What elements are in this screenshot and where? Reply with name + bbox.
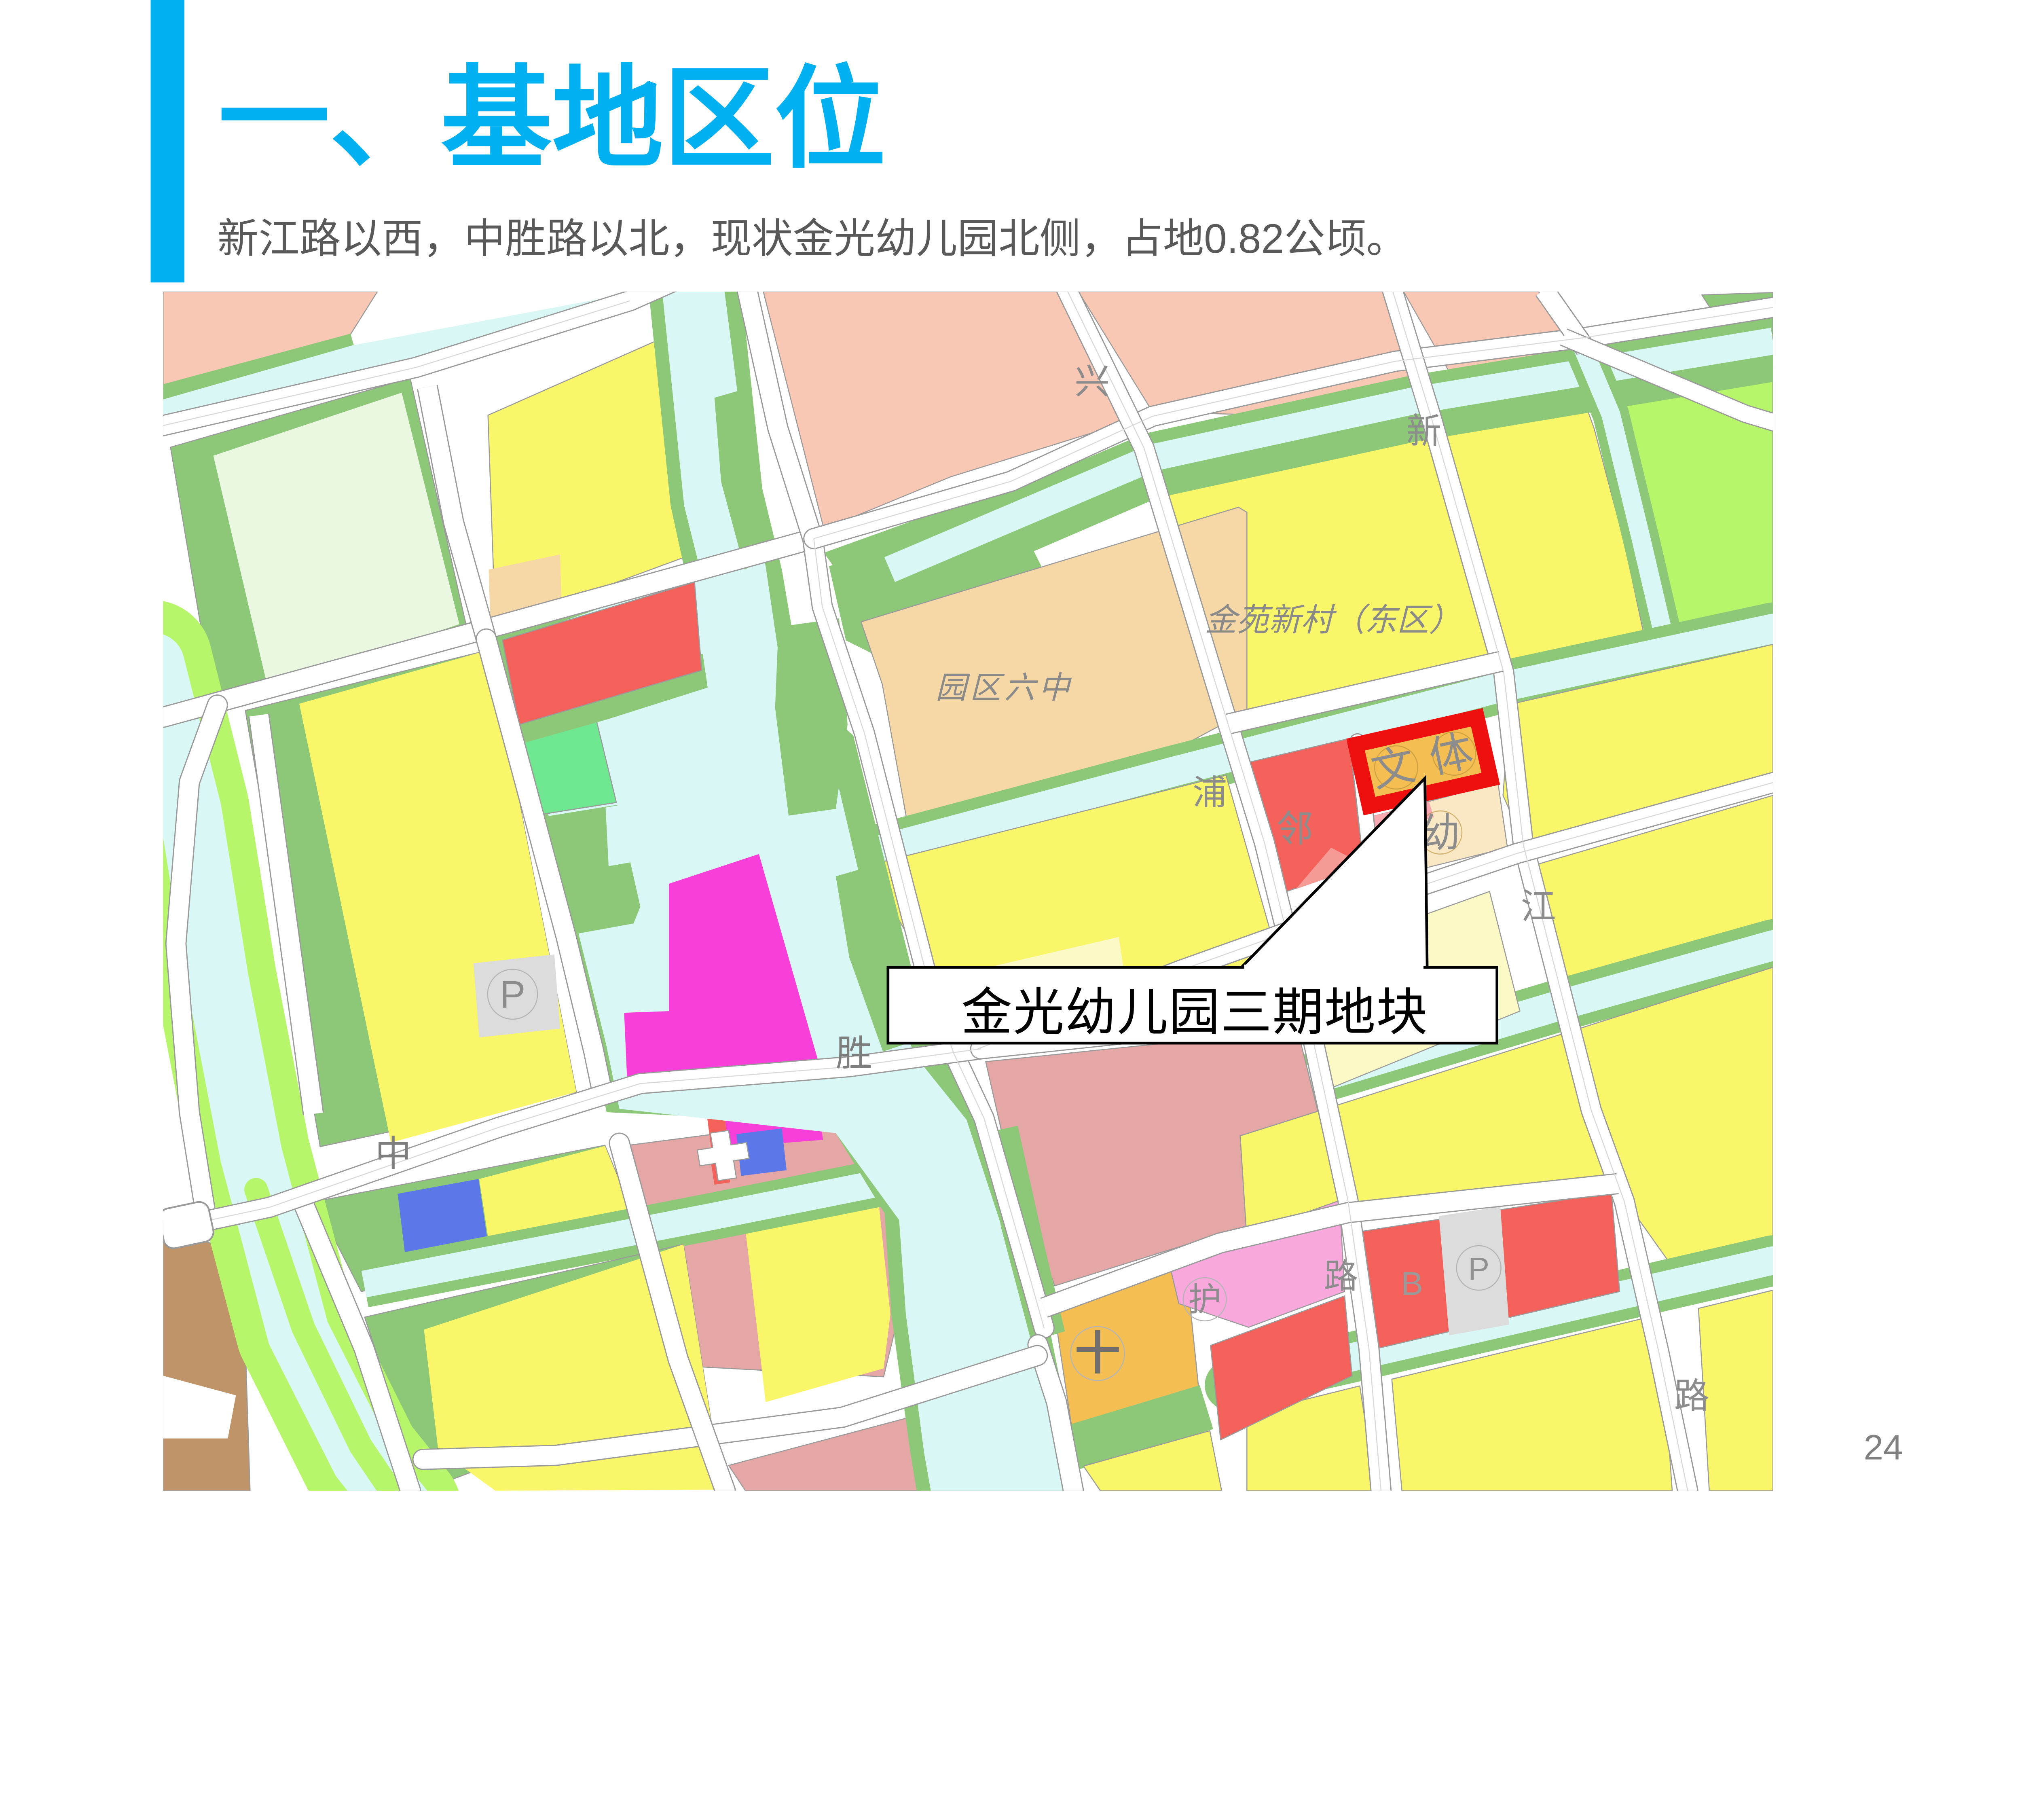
svg-text:中: 中 <box>375 1134 412 1174</box>
svg-text:一、: 一、 <box>218 57 441 181</box>
svg-text:园区六中: 园区六中 <box>935 671 1073 705</box>
svg-text:金光幼儿园三期地块: 金光幼儿园三期地块 <box>961 984 1428 1041</box>
svg-text:路: 路 <box>1674 1376 1710 1416</box>
svg-text:护: 护 <box>1188 1281 1221 1318</box>
svg-text:浦: 浦 <box>1193 774 1227 812</box>
svg-text:邻: 邻 <box>1276 808 1313 850</box>
svg-text:江: 江 <box>1521 887 1556 927</box>
svg-text:兴: 兴 <box>1074 362 1110 401</box>
svg-text:金苑新村（东区）: 金苑新村（东区） <box>1205 603 1461 638</box>
svg-text:24: 24 <box>1863 1427 1903 1467</box>
svg-text:新江路以西，中胜路以北，现状金光幼儿园北侧，占地0.82公顷: 新江路以西，中胜路以北，现状金光幼儿园北侧，占地0.82公顷。 <box>218 216 1408 262</box>
svg-text:十: 十 <box>1075 1328 1121 1379</box>
svg-text:P: P <box>500 973 526 1016</box>
svg-text:P: P <box>1468 1251 1489 1287</box>
svg-text:新: 新 <box>1406 411 1442 451</box>
svg-text:胜: 胜 <box>836 1033 872 1074</box>
svg-text:B: B <box>1401 1266 1423 1302</box>
svg-text:路: 路 <box>1324 1257 1358 1296</box>
svg-text:基地区位: 基地区位 <box>441 57 886 181</box>
